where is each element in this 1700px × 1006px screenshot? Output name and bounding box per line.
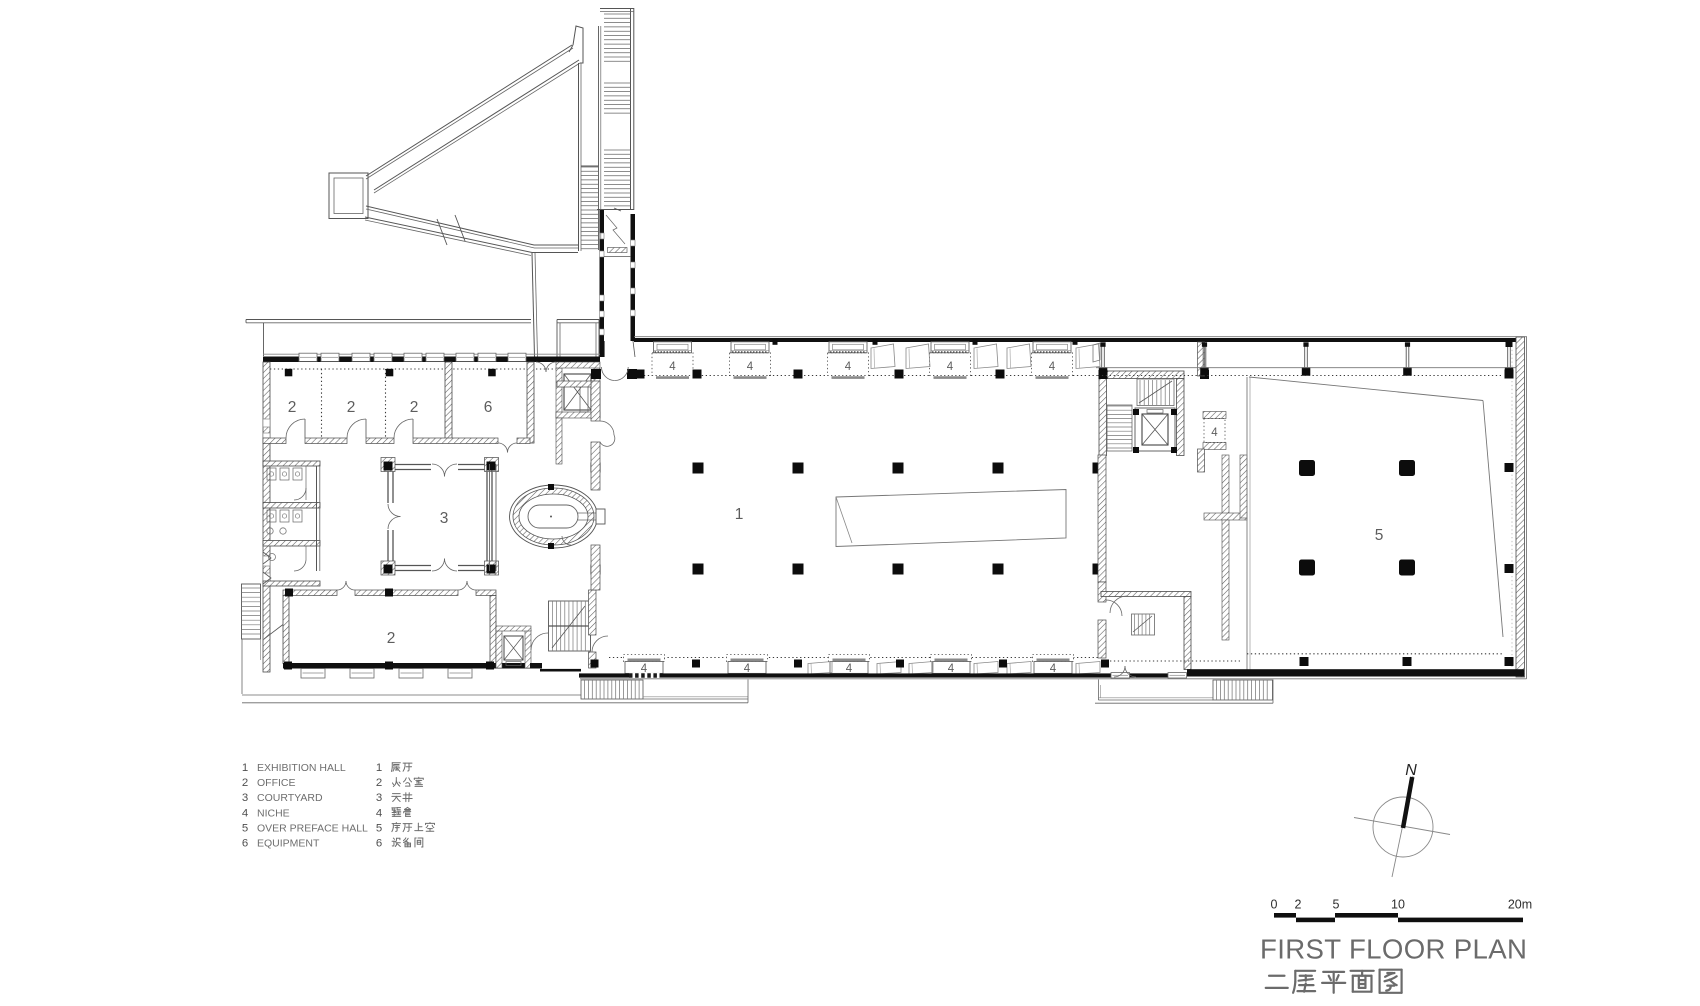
svg-text:1: 1 bbox=[242, 762, 248, 774]
svg-text:4: 4 bbox=[747, 361, 754, 373]
svg-text:EQUIPMENT: EQUIPMENT bbox=[257, 838, 320, 850]
svg-text:5: 5 bbox=[242, 822, 248, 834]
svg-text:5: 5 bbox=[376, 822, 382, 834]
svg-text:5: 5 bbox=[1333, 898, 1340, 912]
svg-text:2: 2 bbox=[376, 777, 382, 789]
svg-text:NICHE: NICHE bbox=[257, 807, 290, 819]
svg-text:OVER PREFACE HALL: OVER PREFACE HALL bbox=[257, 822, 368, 834]
svg-text:4: 4 bbox=[1211, 427, 1218, 439]
svg-text:6: 6 bbox=[376, 838, 382, 850]
svg-text:2: 2 bbox=[410, 399, 419, 416]
svg-text:4: 4 bbox=[669, 361, 676, 373]
svg-text:1: 1 bbox=[735, 506, 744, 523]
svg-text:4: 4 bbox=[744, 663, 751, 675]
svg-text:5: 5 bbox=[1375, 527, 1384, 544]
svg-text:4: 4 bbox=[376, 807, 382, 819]
svg-text:FIRST FLOOR PLAN: FIRST FLOOR PLAN bbox=[1260, 934, 1527, 965]
svg-text:3: 3 bbox=[242, 792, 248, 804]
svg-text:4: 4 bbox=[242, 807, 248, 819]
svg-text:20m: 20m bbox=[1508, 898, 1532, 912]
svg-text:4: 4 bbox=[1049, 361, 1056, 373]
svg-text:N: N bbox=[1405, 762, 1417, 779]
svg-text:6: 6 bbox=[242, 838, 248, 850]
svg-text:2: 2 bbox=[1295, 898, 1302, 912]
svg-text:3: 3 bbox=[440, 510, 449, 527]
svg-text:4: 4 bbox=[1050, 663, 1057, 675]
svg-text:6: 6 bbox=[484, 399, 493, 416]
svg-text:OFFICE: OFFICE bbox=[257, 777, 296, 789]
svg-text:4: 4 bbox=[948, 663, 955, 675]
svg-text:1: 1 bbox=[376, 762, 382, 774]
svg-text:2: 2 bbox=[242, 777, 248, 789]
svg-text:0: 0 bbox=[1271, 898, 1278, 912]
svg-text:2: 2 bbox=[387, 630, 396, 647]
svg-text:4: 4 bbox=[947, 361, 954, 373]
svg-text:2: 2 bbox=[288, 399, 297, 416]
svg-text:EXHIBITION HALL: EXHIBITION HALL bbox=[257, 762, 346, 774]
svg-text:4: 4 bbox=[845, 361, 852, 373]
svg-text:10: 10 bbox=[1391, 898, 1405, 912]
svg-text:COURTYARD: COURTYARD bbox=[257, 792, 323, 804]
svg-text:4: 4 bbox=[846, 663, 853, 675]
svg-text:3: 3 bbox=[376, 792, 382, 804]
svg-text:2: 2 bbox=[347, 399, 356, 416]
